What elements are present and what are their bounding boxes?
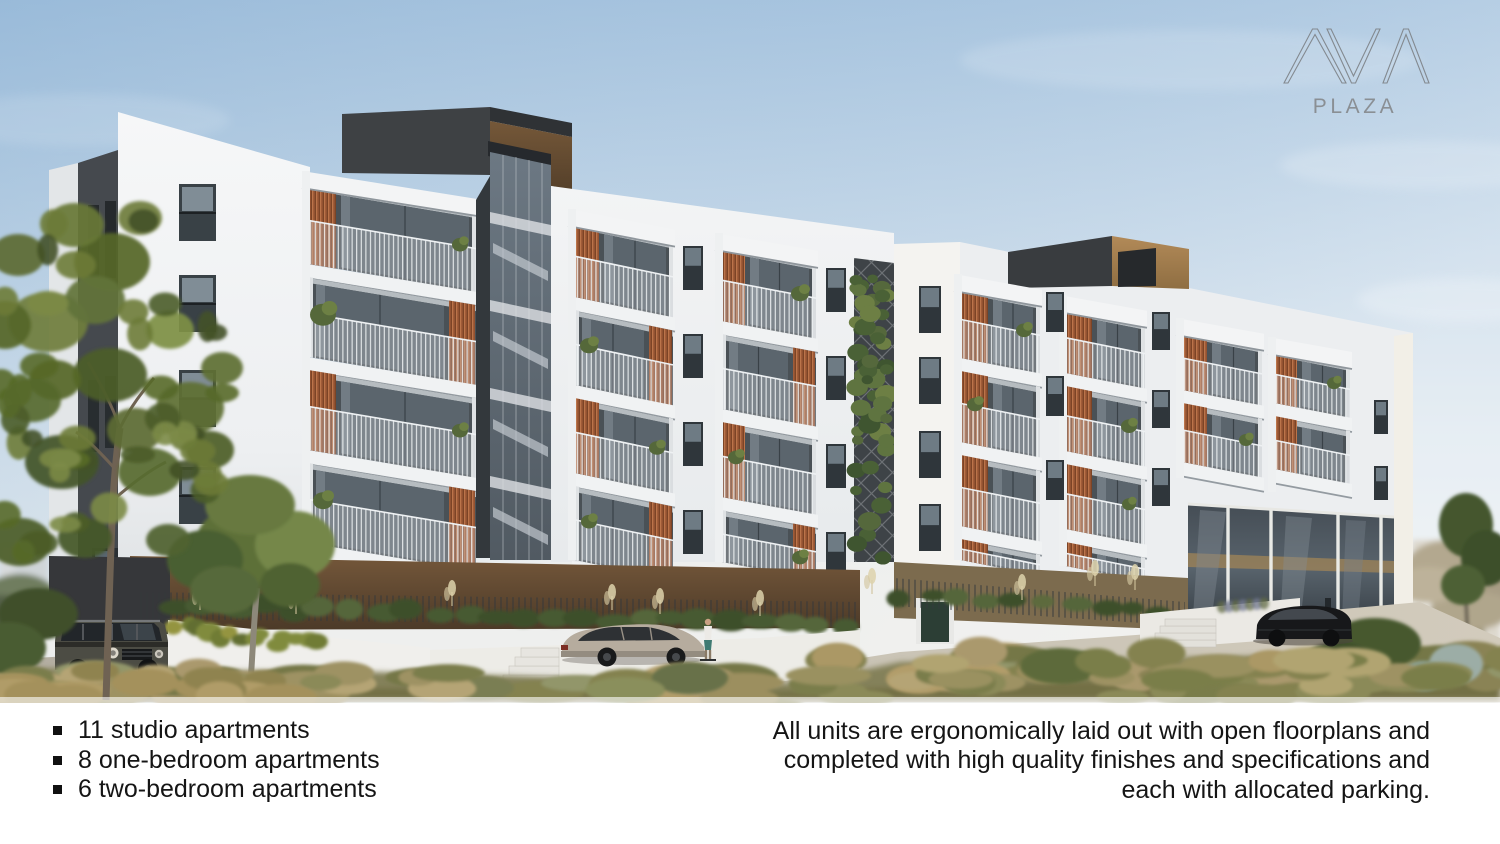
svg-text:PLAZA: PLAZA: [1313, 95, 1398, 118]
